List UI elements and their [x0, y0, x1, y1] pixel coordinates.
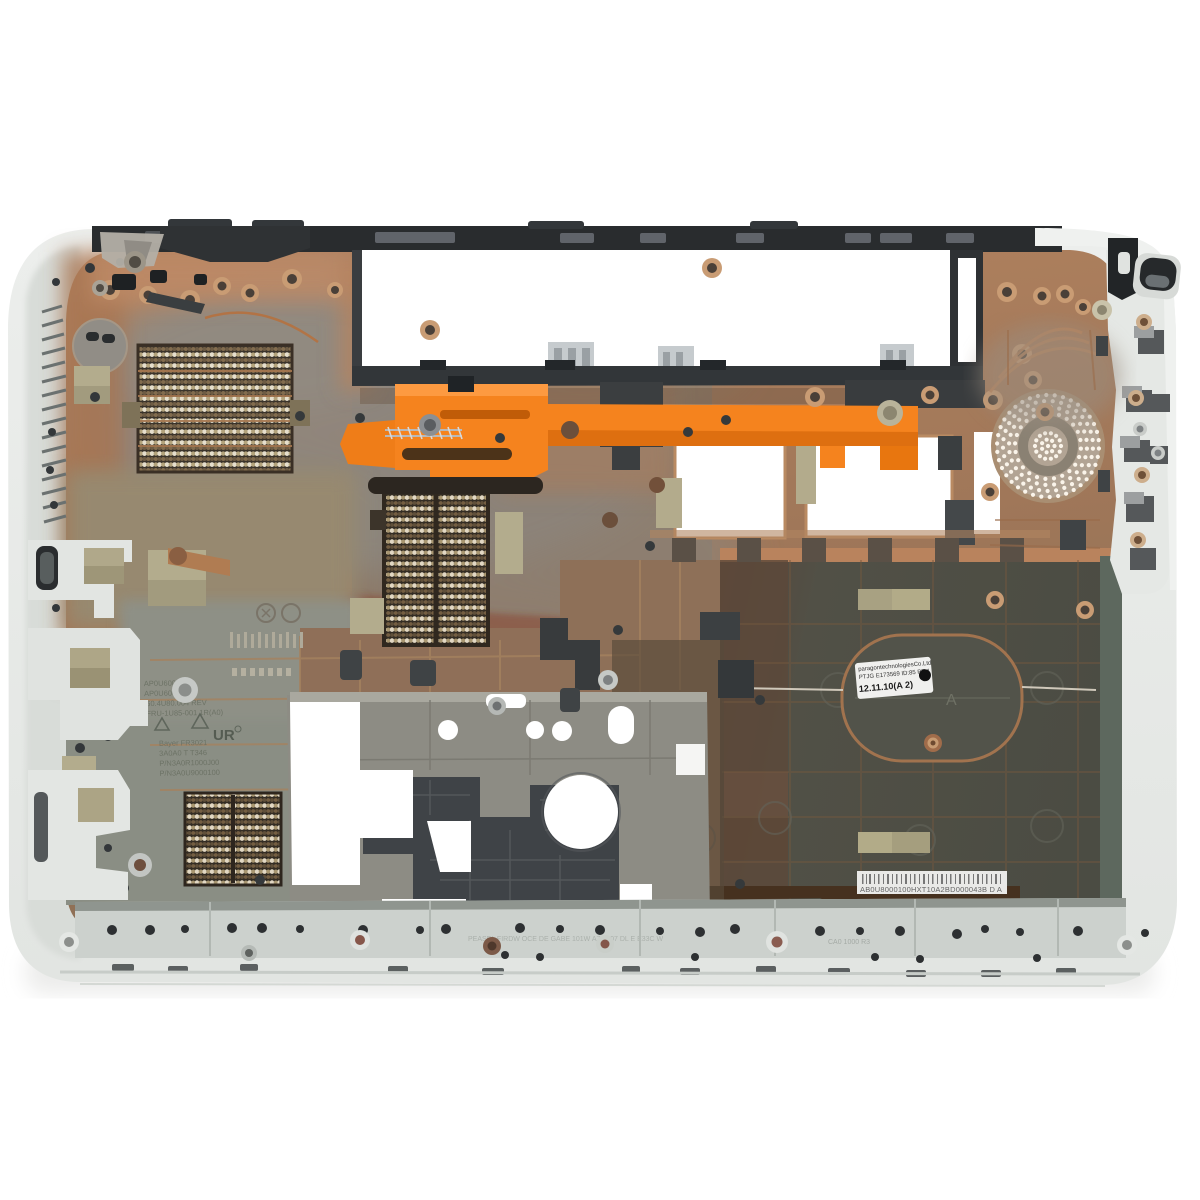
- svg-text:AB0U8000100HXT10A2BD000043B D: AB0U8000100HXT10A2BD000043B D A: [860, 885, 1002, 894]
- svg-text:A: A: [946, 692, 957, 709]
- svg-text:3A0A0 T T346: 3A0A0 T T346: [159, 748, 207, 758]
- svg-text:FRU-1U85-001 1R(A0): FRU-1U85-001 1R(A0): [146, 708, 223, 718]
- svg-text:P/N3A0R1000J00: P/N3A0R1000J00: [159, 758, 219, 768]
- svg-text:UR: UR: [213, 727, 235, 744]
- svg-text:Bayer FR3021: Bayer FR3021: [159, 738, 208, 748]
- svg-text:P/N3A0U9000100: P/N3A0U9000100: [159, 768, 220, 778]
- svg-text:CA0 1000 R3: CA0 1000 R3: [828, 939, 870, 946]
